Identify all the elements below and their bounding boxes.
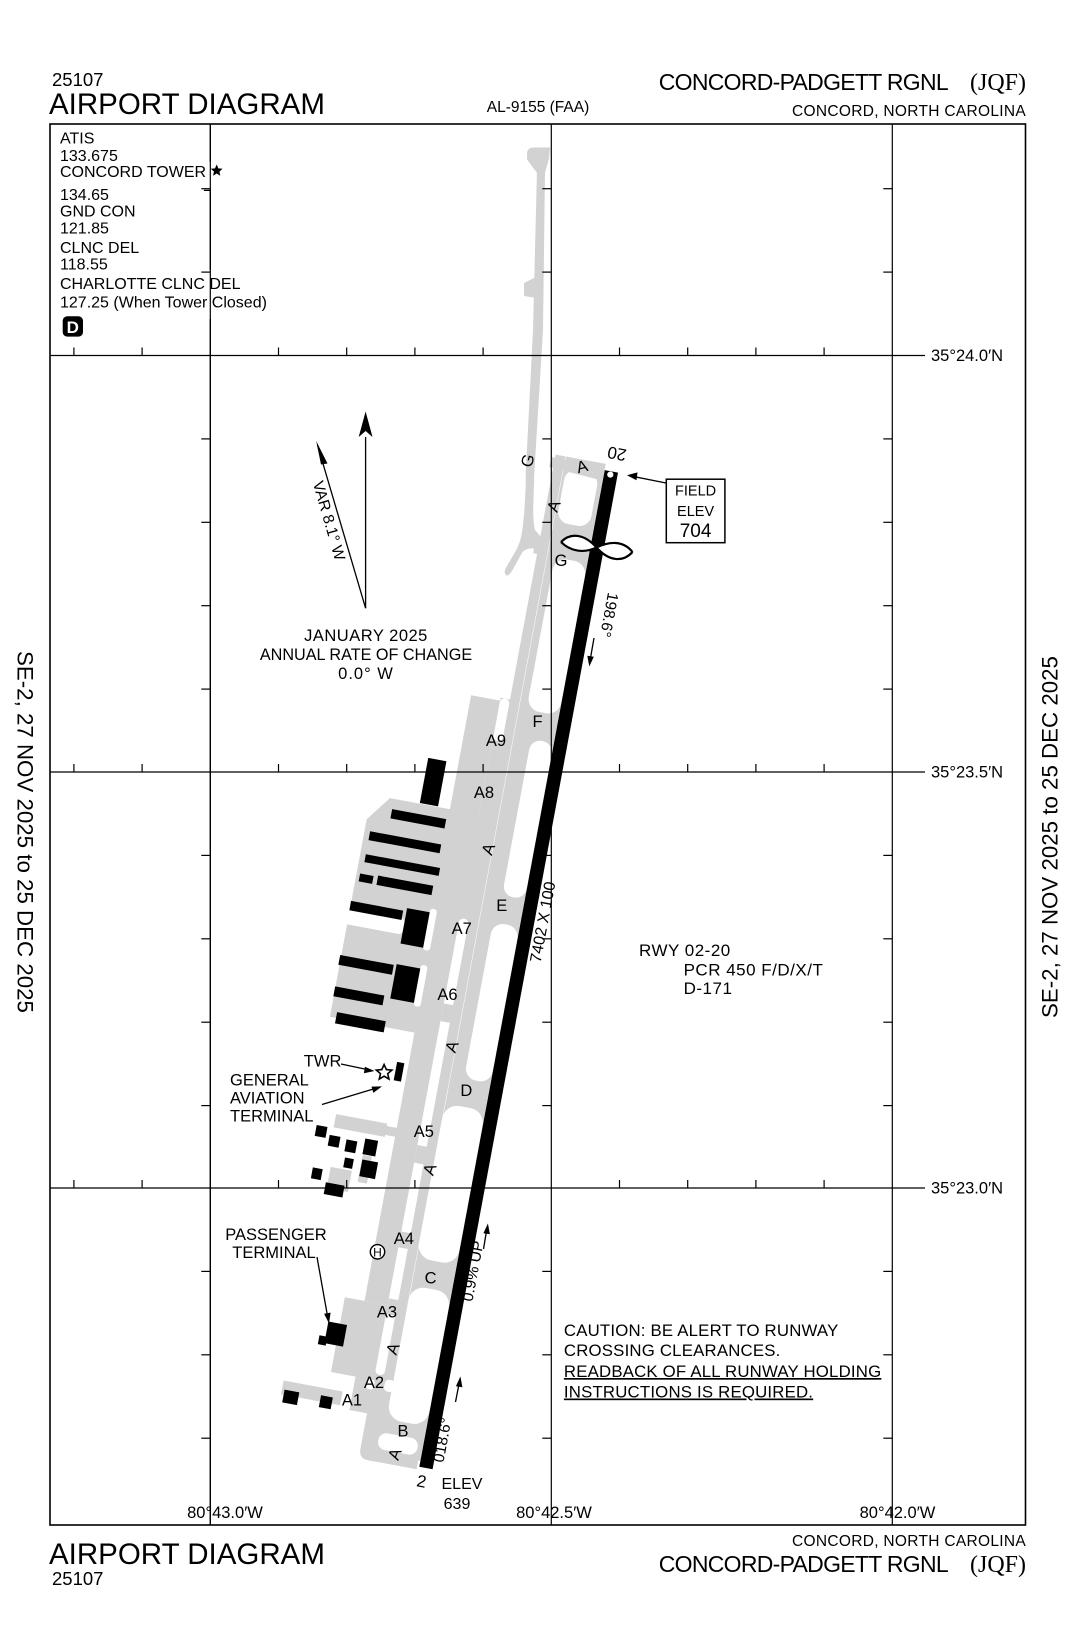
svg-text:G: G <box>555 552 568 570</box>
svg-text:35°23.5′N: 35°23.5′N <box>931 764 1003 782</box>
svg-text:CONCORD, NORTH CAROLINA: CONCORD, NORTH CAROLINA <box>792 103 1026 120</box>
svg-text:133.675: 133.675 <box>60 148 118 165</box>
svg-text:25107: 25107 <box>52 1568 103 1589</box>
svg-text:CAUTION: BE ALERT TO RUNWAY: CAUTION: BE ALERT TO RUNWAY <box>564 1321 839 1340</box>
svg-text:INSTRUCTIONS IS REQUIRED.: INSTRUCTIONS IS REQUIRED. <box>564 1383 813 1402</box>
svg-text:35°24.0′N: 35°24.0′N <box>931 347 1003 365</box>
svg-text:0.0° W: 0.0° W <box>338 665 394 683</box>
svg-text:639: 639 <box>444 1496 471 1513</box>
svg-text:A8: A8 <box>474 784 494 802</box>
svg-text:CHARLOTTE CLNC DEL: CHARLOTTE CLNC DEL <box>60 276 241 293</box>
svg-text:D: D <box>460 1082 472 1100</box>
svg-text:CONCORD-PADGETT RGNL: CONCORD-PADGETT RGNL <box>659 69 949 95</box>
svg-text:80°42.5′W: 80°42.5′W <box>516 1504 592 1522</box>
svg-text:A7: A7 <box>452 920 472 938</box>
svg-text:80°43.0′W: 80°43.0′W <box>187 1504 263 1522</box>
svg-text:25107: 25107 <box>52 69 103 90</box>
svg-text:AVIATION: AVIATION <box>230 1090 305 1108</box>
svg-text:ANNUAL RATE OF CHANGE: ANNUAL RATE OF CHANGE <box>260 646 472 664</box>
svg-text:F: F <box>532 713 542 731</box>
svg-text:SE-2, 27 NOV 2025 to 25 DEC 20: SE-2, 27 NOV 2025 to 25 DEC 2025 <box>1038 656 1063 1018</box>
svg-text:A9: A9 <box>486 732 506 750</box>
svg-text:D: D <box>67 318 79 337</box>
svg-text:704: 704 <box>680 521 712 542</box>
svg-text:A3: A3 <box>377 1304 397 1322</box>
svg-text:PASSENGER: PASSENGER <box>225 1226 327 1244</box>
svg-text:CONCORD TOWER: CONCORD TOWER <box>60 164 206 181</box>
svg-text:CROSSING CLEARANCES.: CROSSING CLEARANCES. <box>564 1341 781 1360</box>
svg-text:JANUARY 2025: JANUARY 2025 <box>304 627 428 645</box>
svg-text:CLNC DEL: CLNC DEL <box>60 240 139 257</box>
svg-text:A2: A2 <box>364 1374 384 1392</box>
svg-text:PCR 450 F/D/X/T: PCR 450 F/D/X/T <box>684 961 824 980</box>
svg-text:35°23.0′N: 35°23.0′N <box>931 1180 1003 1198</box>
svg-text:20: 20 <box>606 442 628 464</box>
svg-text:E: E <box>496 897 507 915</box>
svg-text:RWY 02-20: RWY 02-20 <box>639 941 731 960</box>
svg-text:GENERAL: GENERAL <box>230 1072 309 1090</box>
svg-text:A4: A4 <box>394 1230 414 1248</box>
svg-text:C: C <box>425 1269 437 1287</box>
svg-text:CONCORD-PADGETT RGNL: CONCORD-PADGETT RGNL <box>659 1551 949 1577</box>
svg-text:127.25 (When Tower Closed): 127.25 (When Tower Closed) <box>60 294 267 311</box>
svg-text:READBACK OF ALL RUNWAY HOLDING: READBACK OF ALL RUNWAY HOLDING <box>564 1362 881 1381</box>
svg-text:H: H <box>373 1245 382 1259</box>
svg-text:SE-2, 27 NOV 2025 to 25 DEC 20: SE-2, 27 NOV 2025 to 25 DEC 2025 <box>13 651 38 1013</box>
svg-text:B: B <box>397 1423 408 1441</box>
svg-text:CONCORD, NORTH CAROLINA: CONCORD, NORTH CAROLINA <box>792 1533 1026 1550</box>
svg-text:TERMINAL: TERMINAL <box>230 1108 313 1126</box>
svg-text:134.65: 134.65 <box>60 187 109 204</box>
svg-text:ELEV: ELEV <box>677 504 714 520</box>
svg-text:TERMINAL: TERMINAL <box>232 1244 315 1262</box>
svg-text:ATIS: ATIS <box>60 131 94 148</box>
svg-text:FIELD: FIELD <box>675 484 716 500</box>
svg-text:AIRPORT DIAGRAM: AIRPORT DIAGRAM <box>49 1538 325 1571</box>
svg-text:A6: A6 <box>437 986 457 1004</box>
svg-text:ELEV: ELEV <box>442 1476 483 1493</box>
svg-text:(JQF): (JQF) <box>970 70 1026 96</box>
svg-text:A5: A5 <box>414 1123 434 1141</box>
svg-text:118.55: 118.55 <box>60 257 108 274</box>
svg-text:A1: A1 <box>342 1391 362 1409</box>
svg-text:80°42.0′W: 80°42.0′W <box>860 1504 936 1522</box>
svg-text:AIRPORT DIAGRAM: AIRPORT DIAGRAM <box>49 88 325 121</box>
svg-text:GND CON: GND CON <box>60 204 136 221</box>
svg-text:121.85: 121.85 <box>60 221 109 238</box>
svg-text:AL-9155 (FAA): AL-9155 (FAA) <box>487 99 590 116</box>
svg-text:(JQF): (JQF) <box>970 1552 1026 1578</box>
svg-text:D-171: D-171 <box>684 979 733 998</box>
svg-text:TWR: TWR <box>304 1053 342 1071</box>
